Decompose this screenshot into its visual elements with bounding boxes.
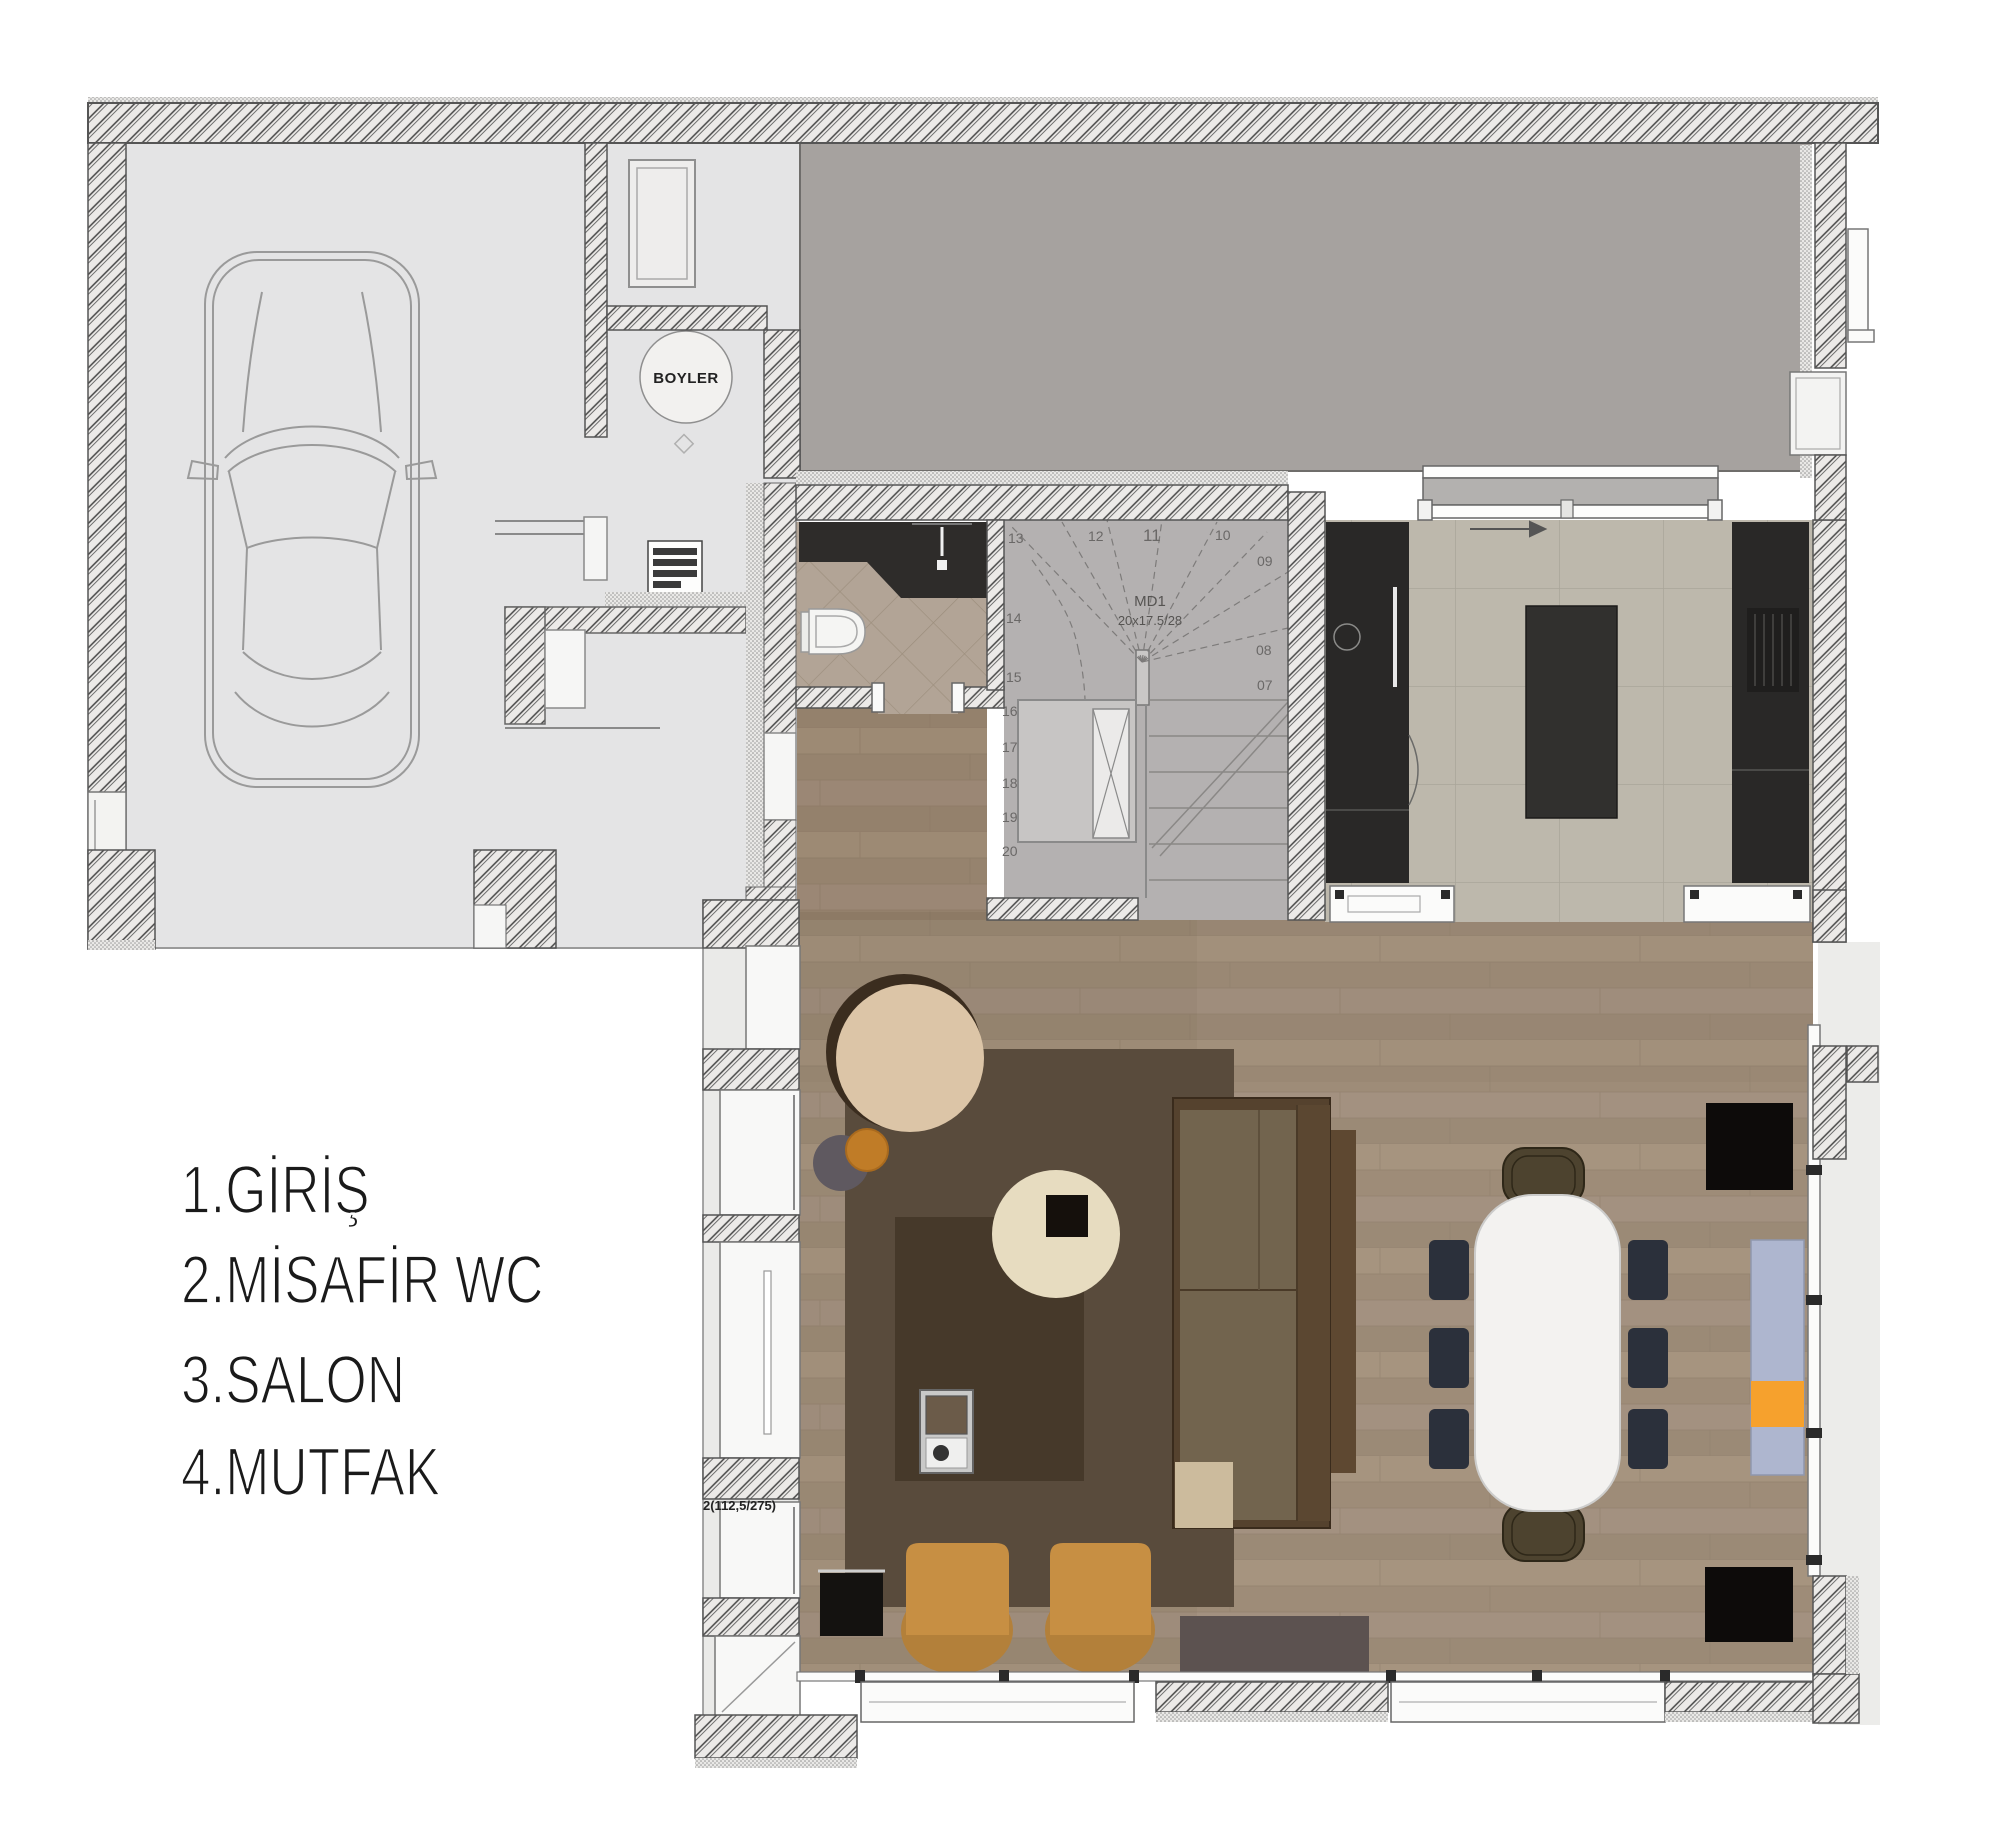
svg-text:14: 14 [1006,610,1022,626]
svg-text:MD1: MD1 [1134,593,1166,610]
svg-text:17: 17 [1002,739,1018,755]
svg-text:11: 11 [1143,526,1161,545]
svg-text:20x17.5/28: 20x17.5/28 [1118,613,1182,628]
svg-text:1.GİRİŞ: 1.GİRİŞ [181,1152,370,1228]
svg-text:3.SALON: 3.SALON [181,1342,405,1418]
svg-text:10: 10 [1215,527,1231,543]
svg-text:07: 07 [1257,677,1273,693]
svg-text:15: 15 [1006,669,1022,685]
svg-text:13: 13 [1008,530,1024,546]
svg-text:4.MUTFAK: 4.MUTFAK [181,1434,440,1510]
svg-text:2.MİSAFİR WC: 2.MİSAFİR WC [181,1242,543,1318]
svg-text:19: 19 [1002,809,1018,825]
svg-text:BOYLER: BOYLER [653,370,719,387]
svg-text:18: 18 [1002,775,1018,791]
svg-text:20: 20 [1002,843,1018,859]
svg-text:09: 09 [1257,553,1273,569]
svg-text:12: 12 [1088,528,1104,544]
svg-text:08: 08 [1256,642,1272,658]
svg-text:2(112,5/275): 2(112,5/275) [703,1498,776,1513]
